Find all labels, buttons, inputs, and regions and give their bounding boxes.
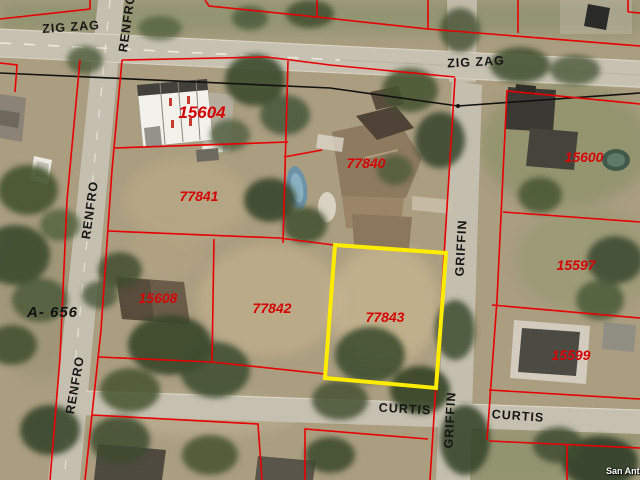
map-viewport[interactable]: A- 656 San Anto 156047784177840156001559… [0,0,640,480]
garage-77840 [352,214,412,250]
shed [196,148,219,162]
house-15599 [518,328,580,376]
dark-car [584,4,610,30]
shed-15599 [602,322,636,352]
aerial-imagery [0,0,640,480]
